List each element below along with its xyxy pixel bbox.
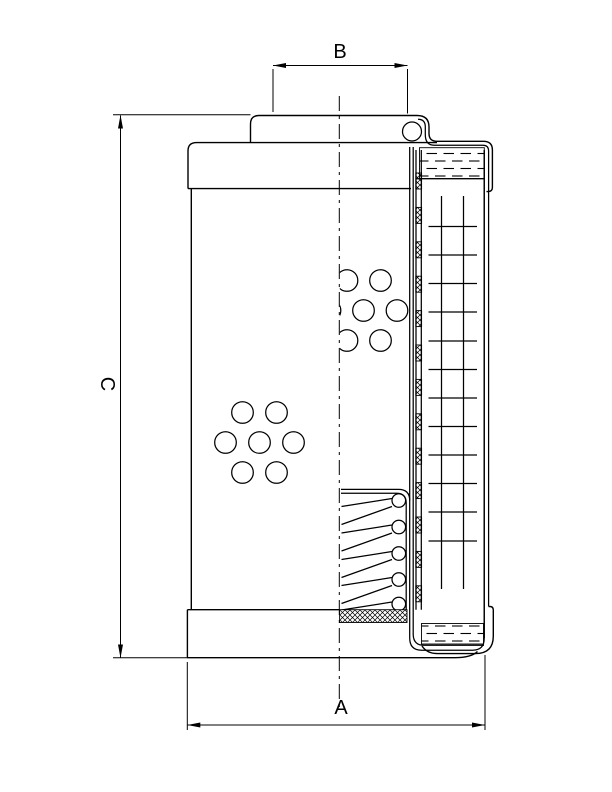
neck-outline <box>251 116 418 143</box>
core-segment <box>416 551 422 567</box>
spring-wire <box>342 560 393 578</box>
hole <box>232 462 254 484</box>
hole <box>386 300 408 322</box>
top-end-cap-section <box>420 148 485 179</box>
spring-coil-section <box>392 547 406 561</box>
hole <box>319 300 341 322</box>
filter-media-pleats <box>429 196 478 589</box>
bottom-end-cap-section <box>422 624 484 645</box>
spring-wire <box>342 533 393 551</box>
dimension-label-b: B <box>333 41 346 63</box>
core-segment <box>416 311 422 327</box>
core-segment <box>416 207 422 223</box>
spring-coil-section <box>392 597 406 611</box>
arrowhead-bottom <box>118 645 123 659</box>
outer-shell <box>422 150 493 654</box>
drain-holes-lower <box>215 402 305 484</box>
spring-wire <box>342 578 393 586</box>
core-segment <box>416 345 422 361</box>
hole <box>215 432 237 454</box>
core-segment <box>416 414 422 430</box>
spring-coil-section <box>392 573 406 587</box>
shell-top-inner <box>418 119 489 606</box>
drawing-page: B C A <box>0 0 612 792</box>
dimension-b: B <box>273 41 408 114</box>
filter-element-technical-drawing: B C A <box>0 0 612 792</box>
dimension-label-c: C <box>96 377 118 391</box>
o-ring <box>403 122 422 141</box>
spring-coil-section <box>392 494 406 508</box>
arrowhead-right <box>395 63 408 68</box>
spring-wire <box>342 525 393 533</box>
core-segment <box>416 242 422 258</box>
seal-crosshatch-band <box>340 610 407 623</box>
hole <box>266 462 288 484</box>
top-cap-outline <box>188 143 437 189</box>
spring-wire <box>342 586 393 604</box>
top-cap <box>188 143 484 189</box>
hole <box>249 432 271 454</box>
arrowhead-left <box>273 63 286 68</box>
core-segment <box>416 448 422 464</box>
core-segment <box>416 379 422 395</box>
arrowhead-right <box>472 723 485 728</box>
core-tube-wall <box>413 147 484 645</box>
core-segment <box>416 276 422 292</box>
hole <box>353 300 375 322</box>
hole <box>283 432 305 454</box>
drain-holes-upper <box>319 270 408 352</box>
hole <box>266 402 288 424</box>
hole <box>370 270 392 292</box>
spring-wire <box>342 552 393 560</box>
bottom-cap-bottom-edge <box>187 652 477 658</box>
core-segment <box>416 517 422 533</box>
spring-coil-section <box>392 520 406 534</box>
dimension-label-a: A <box>334 697 348 719</box>
dimension-c: C <box>96 115 251 658</box>
hole <box>232 402 254 424</box>
spring-wire <box>342 499 393 507</box>
spring-cup-outer <box>341 489 410 500</box>
bypass-spring <box>341 489 410 610</box>
core-segment <box>416 173 422 189</box>
hole <box>370 330 392 352</box>
arrowhead-top <box>118 115 123 129</box>
dimension-a: A <box>187 655 485 730</box>
spring-wire <box>342 602 393 610</box>
spring-wire <box>342 507 393 525</box>
core-segment <box>416 586 422 602</box>
arrowhead-left <box>187 723 200 728</box>
core-segment <box>416 483 422 499</box>
